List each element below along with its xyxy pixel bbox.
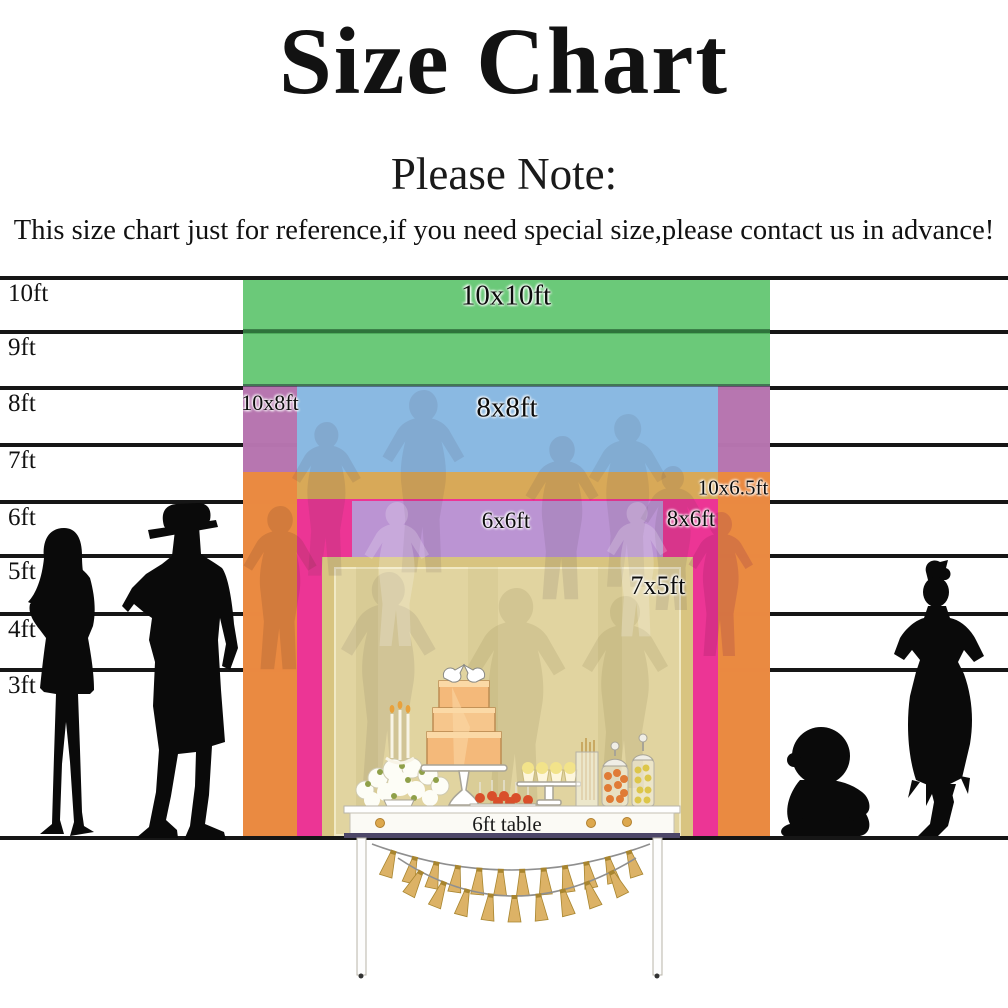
silhouette-woman-icon [28, 528, 95, 836]
size-chart-infographic: Size Chart Please Note: This size chart … [0, 0, 1008, 1008]
silhouette-baby-icon [781, 727, 869, 836]
silhouette-man-icon [122, 503, 238, 840]
silhouette-dancer-icon [894, 560, 984, 836]
silhouettes-layer [0, 0, 1008, 1008]
